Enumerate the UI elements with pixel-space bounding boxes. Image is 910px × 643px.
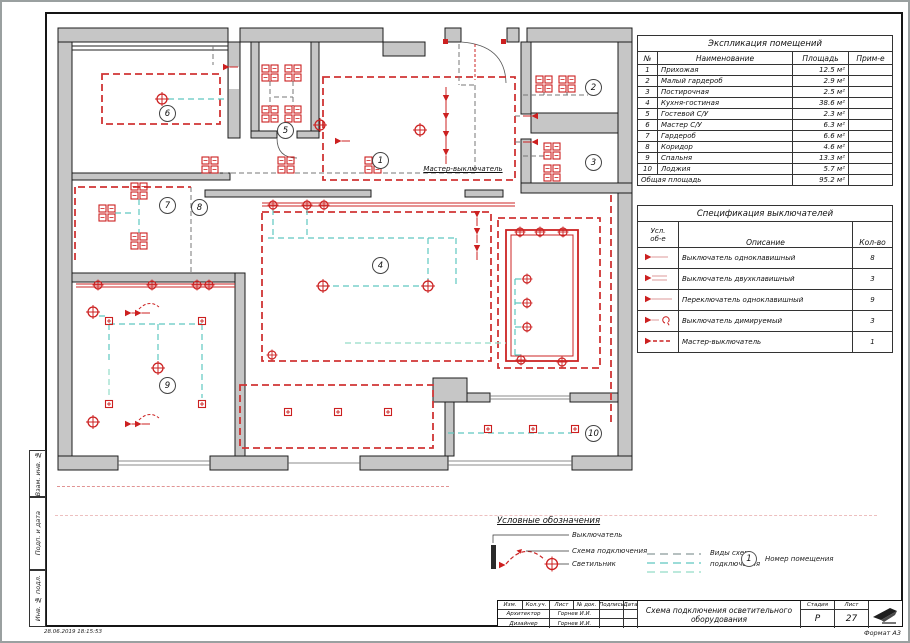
tb-name: Горнев И.И.	[550, 619, 600, 628]
sheet-number: 27	[835, 610, 869, 628]
room-tag-10: 10	[585, 425, 602, 442]
tb-role: Архитектор	[498, 610, 550, 619]
cell-num: 2	[638, 76, 658, 87]
cell-note	[849, 164, 893, 175]
room-explication-table: Экспликация помещений № Наименование Пло…	[637, 35, 893, 186]
cell-note	[849, 65, 893, 76]
col-header-qty: Кол-во	[853, 222, 893, 248]
cell-num: 7	[638, 131, 658, 142]
legend-scheme-label: Схема подключения	[572, 547, 647, 555]
cell-area: 38.6 м²	[793, 98, 849, 109]
room-tag-6: 6	[159, 105, 176, 122]
cell-note	[849, 109, 893, 120]
cell-area: 5.7 м²	[793, 164, 849, 175]
tb-header: Подпись	[600, 601, 624, 610]
legend-light-label: Светильник	[572, 560, 616, 568]
table-row: Мастер-выключатель 1	[638, 332, 893, 353]
room-tag-5: 5	[277, 122, 294, 139]
cell-area: 2.9 м²	[793, 76, 849, 87]
cell-desc: Выключатель одноклавишный	[679, 248, 853, 269]
plot-timestamp: 28.06.2019 18:15:53	[44, 629, 102, 635]
legend-symbols	[489, 531, 584, 577]
table-title: Спецификация выключателей	[638, 206, 893, 222]
drawing-sheet: Взам. инв. № Подп. и дата Инв. № подл.	[0, 0, 910, 643]
table-header-row: Усл.об-е Описание Кол-во	[638, 222, 893, 248]
switch-1gang-icon	[641, 250, 675, 264]
cell-name: Лоджия	[658, 164, 793, 175]
switch-icon	[499, 562, 506, 568]
table-row: 4Кухня-гостиная38.6 м²	[638, 98, 893, 109]
cell-note	[849, 120, 893, 131]
cell-note	[849, 87, 893, 98]
logo-icon	[870, 604, 900, 626]
cell-name: Спальня	[658, 153, 793, 164]
cell-name: Кухня-гостиная	[658, 98, 793, 109]
table-row: 8Коридор4.6 м²	[638, 142, 893, 153]
cell-name: Малый гардероб	[658, 76, 793, 87]
cell-note	[849, 142, 893, 153]
cell-num: 9	[638, 153, 658, 164]
cell-note	[849, 175, 893, 186]
switch-spec-table: Спецификация выключателей Усл.об-е Описа…	[637, 205, 893, 353]
doc-title: Схема подключения осветительногооборудов…	[638, 601, 801, 628]
cell-num: 4	[638, 98, 658, 109]
floor-plan	[55, 25, 635, 485]
tb-name: Горнев И.И.	[550, 610, 600, 619]
cell-num: 5	[638, 109, 658, 120]
cell-desc: Переключатель одноклавишный	[679, 290, 853, 311]
side-cell-podp: Подп. и дата	[29, 497, 46, 570]
cell-qty: 9	[853, 290, 893, 311]
room-tag-2: 2	[585, 79, 602, 96]
cell-note	[849, 153, 893, 164]
col-header-desc: Описание	[679, 222, 853, 248]
col-header-name: Наименование	[658, 52, 793, 65]
cell-name: Мастер С/У	[658, 120, 793, 131]
tb-header: № док.	[574, 601, 600, 610]
cell-num: 8	[638, 142, 658, 153]
cell-num: 1	[638, 65, 658, 76]
table-total-row: Общая площадь95.2 м²	[638, 175, 893, 186]
table-row: Выключатель одноклавишный 8	[638, 248, 893, 269]
cell-area: 13.3 м²	[793, 153, 849, 164]
legend-title: Условные обозначения	[497, 516, 600, 526]
room-tag-9: 9	[159, 377, 176, 394]
stage-value: Р	[801, 610, 835, 628]
side-label: Подп. и дата	[34, 511, 42, 555]
tb-role: Дизайнер	[498, 619, 550, 628]
tb-date	[624, 619, 638, 628]
table-row: 7Гардероб6.6 м²	[638, 131, 893, 142]
master-switch-icon	[641, 334, 675, 348]
room-number-label: Номер помещения	[765, 555, 834, 563]
cell-num: 3	[638, 87, 658, 98]
cell-note	[849, 131, 893, 142]
room-tag-1: 1	[372, 152, 389, 169]
cell-num: 10	[638, 164, 658, 175]
table-row: 2Малый гардероб2.9 м²	[638, 76, 893, 87]
table-row: 1Прихожая12.5 м²	[638, 65, 893, 76]
cell-note	[849, 76, 893, 87]
door-jamb-icon	[491, 545, 496, 569]
cell-name: Постирочная	[658, 87, 793, 98]
table-row: 10Лоджия5.7 м²	[638, 164, 893, 175]
cell-note	[849, 98, 893, 109]
table-title-row: Экспликация помещений	[638, 36, 893, 52]
toggle-1gang-icon	[641, 292, 675, 306]
red-dotted-separator	[55, 515, 877, 516]
format-label: Формат А3	[845, 629, 901, 637]
cell-area: 6.3 м²	[793, 120, 849, 131]
tb-header: Кол.уч.	[523, 601, 550, 610]
room-number-example: 1	[741, 551, 757, 567]
side-cell-vzam: Взам. инв. №	[29, 450, 46, 497]
cell-name: Коридор	[658, 142, 793, 153]
cell-qty: 8	[853, 248, 893, 269]
table-header-row: № Наименование Площадь Прим-е	[638, 52, 893, 65]
cell-num: 6	[638, 120, 658, 131]
scheme-type-lines	[645, 551, 703, 577]
table-row: Выключатель двухклавишный 3	[638, 269, 893, 290]
table-row: Переключатель одноклавишный 9	[638, 290, 893, 311]
table-row: Выключатель димируемый 3	[638, 311, 893, 332]
fixture-layer	[86, 64, 579, 433]
cell-area: 2.3 м²	[793, 109, 849, 120]
room-tag-3: 3	[585, 154, 602, 171]
col-header-note: Прим-е	[849, 52, 893, 65]
stage-header: Стадия	[801, 601, 835, 610]
total-label: Общая площадь	[638, 175, 793, 186]
luminaire-icon	[545, 557, 560, 572]
cell-name: Гостевой С/У	[658, 109, 793, 120]
table-row: 5Гостевой С/У2.3 м²	[638, 109, 893, 120]
cell-name: Гардероб	[658, 131, 793, 142]
cell-area: 2.5 м²	[793, 87, 849, 98]
col-header-area: Площадь	[793, 52, 849, 65]
sheet-header: Лист	[835, 601, 869, 610]
legend-switch-label: Выключатель	[572, 531, 622, 539]
tb-signature	[600, 610, 624, 619]
arrowhead-icon	[517, 549, 523, 554]
col-header-num: №	[638, 52, 658, 65]
side-cell-inv: Инв. № подл.	[29, 570, 46, 627]
master-switch-label: Мастер-выключатель	[398, 165, 528, 173]
cell-qty: 1	[853, 332, 893, 353]
tb-date	[624, 610, 638, 619]
cell-name: Прихожая	[658, 65, 793, 76]
side-label: Взам. инв. №	[34, 451, 42, 496]
cell-desc: Выключатель двухклавишный	[679, 269, 853, 290]
switch-dimmer-icon	[641, 313, 675, 327]
table-row: 6Мастер С/У6.3 м²	[638, 120, 893, 131]
cell-qty: 3	[853, 311, 893, 332]
room-tag-8: 8	[191, 199, 208, 216]
tb-header: Лист	[550, 601, 574, 610]
red-dashed-separator	[57, 486, 449, 487]
cell-qty: 3	[853, 269, 893, 290]
col-header-symbol: Усл.об-е	[638, 222, 679, 248]
switch-2gang-icon	[641, 271, 675, 285]
table-title: Экспликация помещений	[638, 36, 893, 52]
leader-lines	[493, 535, 569, 564]
connection-arc-icon	[506, 551, 545, 564]
room-tag-7: 7	[159, 197, 176, 214]
cell-desc: Мастер-выключатель	[679, 332, 853, 353]
table-title-row: Спецификация выключателей	[638, 206, 893, 222]
cell-area: 4.6 м²	[793, 142, 849, 153]
title-block: Изм. Кол.уч. Лист № док. Подпись Дата Ар…	[497, 600, 903, 627]
cell-area: 12.5 м²	[793, 65, 849, 76]
cell-desc: Выключатель димируемый	[679, 311, 853, 332]
room-tag-4: 4	[372, 257, 389, 274]
company-logo	[869, 601, 901, 628]
tb-header: Изм.	[498, 601, 523, 610]
table-row: 9Спальня13.3 м²	[638, 153, 893, 164]
tb-header: Дата	[624, 601, 638, 610]
cell-area: 6.6 м²	[793, 131, 849, 142]
side-label: Инв. № подл.	[34, 575, 42, 621]
table-row: 3Постирочная2.5 м²	[638, 87, 893, 98]
tb-signature	[600, 619, 624, 628]
total-value: 95.2 м²	[793, 175, 849, 186]
